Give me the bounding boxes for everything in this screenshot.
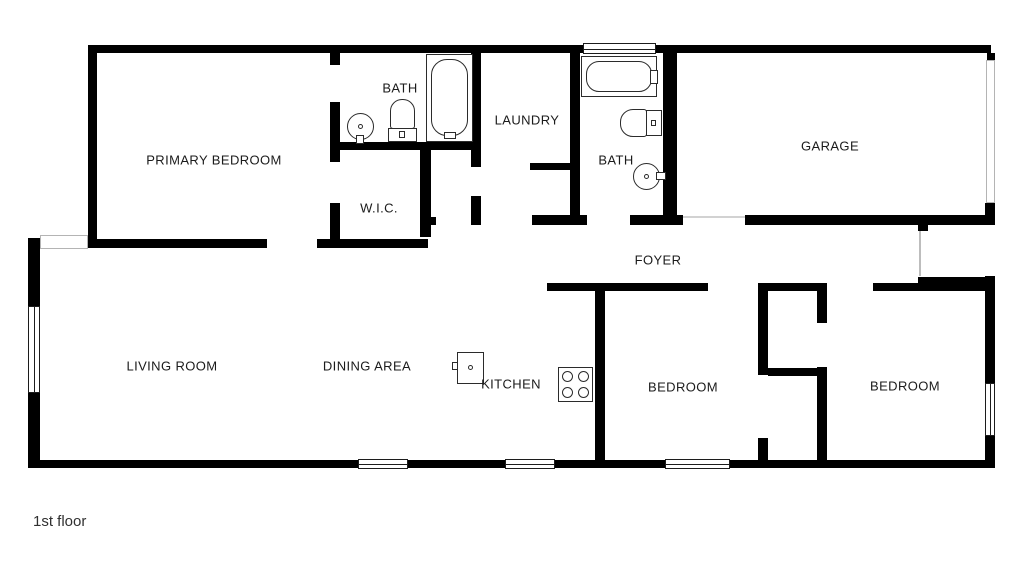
wall — [408, 460, 505, 468]
kitchen-appliance-tab — [452, 362, 458, 370]
room-label-foyer: FOYER — [635, 253, 682, 268]
room-label-primary-bedroom: PRIMARY BEDROOM — [146, 153, 282, 168]
window-living-bottom — [358, 459, 408, 469]
window-living-corner — [40, 235, 88, 249]
window-bath2-top — [583, 43, 656, 54]
wall — [471, 150, 481, 167]
wall — [817, 291, 827, 323]
wall — [745, 215, 995, 225]
wall — [28, 460, 358, 468]
stove-burner-3 — [562, 387, 573, 398]
room-label-living-room: LIVING ROOM — [126, 359, 217, 374]
wall — [758, 283, 827, 291]
room-label-bedroom-1: BEDROOM — [648, 380, 718, 395]
wall — [88, 239, 267, 248]
floor-title: 1st floor — [33, 513, 86, 530]
garage-door-opening — [986, 60, 995, 203]
sink-2-faucet — [656, 172, 666, 180]
wall — [330, 142, 481, 150]
bathtub-1-faucet — [444, 132, 456, 139]
bathtub-2-basin — [586, 61, 652, 92]
wall — [430, 217, 436, 225]
toilet-2-button — [651, 120, 656, 126]
wall — [547, 283, 708, 291]
window-bedroom1-bottom-pane — [666, 464, 729, 465]
wall — [88, 53, 97, 248]
wall — [530, 163, 570, 170]
window-living-left-pane — [34, 307, 35, 392]
wall — [330, 203, 340, 248]
room-label-laundry: LAUNDRY — [495, 113, 560, 128]
window-bedroom2-right-pane — [990, 384, 991, 435]
window-living-bottom-pane — [359, 464, 407, 465]
wall — [758, 438, 768, 460]
window-bedroom1-bottom — [665, 459, 730, 469]
wall — [630, 215, 683, 225]
bathtub-2-faucet — [650, 70, 658, 84]
wall — [817, 367, 827, 460]
wall — [555, 460, 665, 468]
stove-burner-4 — [578, 387, 589, 398]
threshold-line — [683, 216, 745, 218]
room-label-bath-1: BATH — [382, 81, 417, 96]
window-bedroom2-right — [985, 383, 995, 436]
wall — [768, 368, 817, 376]
wall — [330, 53, 340, 65]
wall — [985, 436, 995, 462]
room-label-wic: W.I.C. — [360, 201, 398, 216]
wall — [663, 48, 677, 216]
sink-1-drain — [358, 124, 363, 129]
window-bath2-top-pane — [584, 49, 655, 50]
wall — [656, 45, 991, 53]
room-label-dining-area: DINING AREA — [323, 359, 411, 374]
kitchen-appliance-knob — [468, 365, 473, 370]
room-label-kitchen: KITCHEN — [481, 377, 541, 392]
window-living-left — [28, 306, 40, 393]
wall — [28, 238, 40, 306]
wall — [730, 460, 995, 468]
wall — [985, 276, 995, 383]
toilet-1-button — [399, 131, 405, 138]
sink-1-faucet — [356, 135, 364, 144]
room-label-bedroom-2: BEDROOM — [870, 379, 940, 394]
toilet-2-bowl — [620, 109, 647, 137]
wall — [471, 196, 481, 225]
wall — [532, 215, 587, 225]
wall — [873, 283, 918, 291]
wall — [595, 291, 605, 460]
room-label-bath-2: BATH — [598, 153, 633, 168]
wall — [570, 45, 580, 215]
toilet-1-bowl — [390, 99, 415, 129]
bathtub-1-basin — [431, 59, 468, 136]
porch-line — [919, 231, 921, 276]
wall — [918, 277, 995, 291]
wall — [758, 291, 768, 375]
window-dining-bottom — [505, 459, 555, 469]
wall — [28, 393, 40, 468]
wall — [88, 45, 583, 53]
sink-2-drain — [644, 174, 649, 179]
wall — [330, 102, 340, 162]
room-label-garage: GARAGE — [801, 139, 859, 154]
stove-burner-2 — [578, 371, 589, 382]
floorplan-canvas: 1st floor PRIMARY BEDROOMBATHW.I.C.LAUND… — [0, 0, 1024, 576]
window-dining-bottom-pane — [506, 464, 554, 465]
stove-burner-1 — [562, 371, 573, 382]
